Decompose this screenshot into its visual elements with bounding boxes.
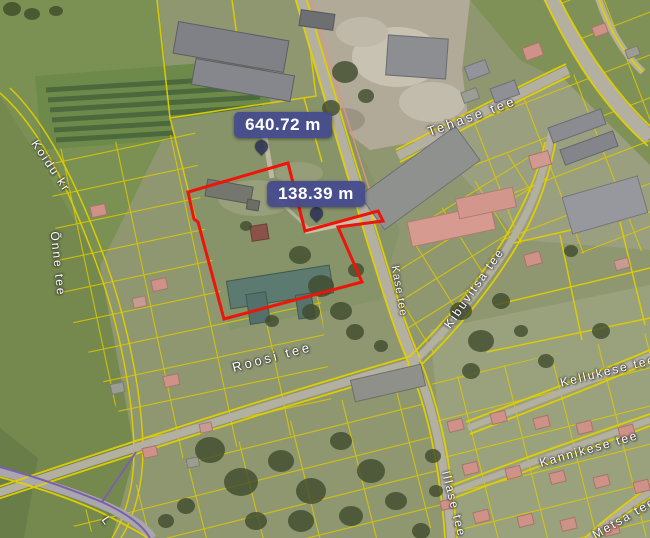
building	[186, 457, 200, 468]
building	[151, 278, 168, 292]
building	[90, 204, 107, 218]
building	[199, 422, 213, 433]
building	[386, 35, 449, 79]
measurement-badge-640: 640.72 m	[234, 112, 332, 138]
measurement-badge-138: 138.39 m	[267, 181, 365, 207]
map-viewport[interactable]: Tehase tee Koidu kr Õnne tee Roosi tee K…	[0, 0, 650, 538]
aerial-map-canvas	[0, 0, 650, 538]
building	[250, 224, 269, 241]
building	[246, 199, 260, 211]
building	[142, 446, 158, 459]
building	[110, 382, 125, 394]
building	[132, 296, 147, 308]
building	[163, 374, 180, 388]
